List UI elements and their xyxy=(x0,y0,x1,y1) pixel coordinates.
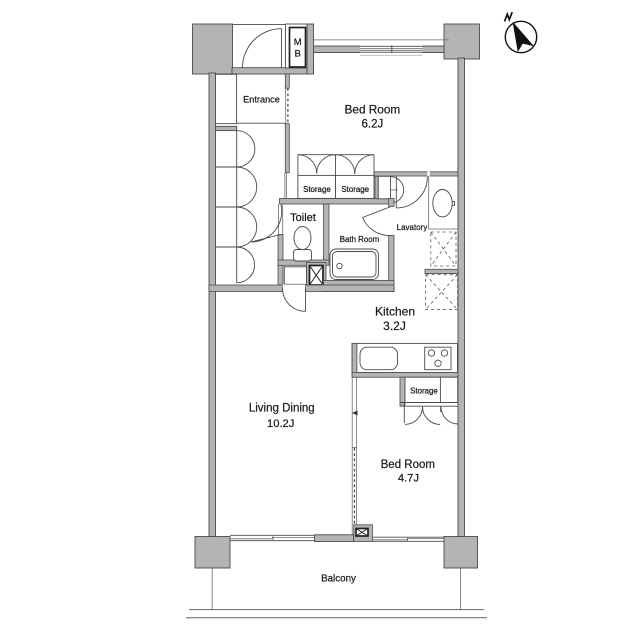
svg-text:Storage: Storage xyxy=(303,185,331,194)
svg-text:10.2J: 10.2J xyxy=(267,418,294,430)
svg-text:6.2J: 6.2J xyxy=(362,119,384,131)
svg-text:Lavatory: Lavatory xyxy=(397,223,428,232)
svg-text:Bath Room: Bath Room xyxy=(340,235,380,244)
svg-text:B: B xyxy=(295,49,301,60)
svg-text:4.7J: 4.7J xyxy=(398,473,419,485)
svg-text:Storage: Storage xyxy=(410,386,438,395)
svg-text:Toilet: Toilet xyxy=(290,212,316,224)
svg-text:Balcony: Balcony xyxy=(321,573,356,584)
svg-text:Bed Room: Bed Room xyxy=(381,459,435,471)
svg-text:3.2J: 3.2J xyxy=(383,319,406,333)
svg-text:Entrance: Entrance xyxy=(243,95,280,105)
svg-text:M: M xyxy=(294,37,302,48)
svg-text:Kitchen: Kitchen xyxy=(375,305,415,319)
svg-text:Bed Room: Bed Room xyxy=(345,103,401,117)
svg-text:Living Dining: Living Dining xyxy=(249,402,315,414)
svg-text:Storage: Storage xyxy=(341,185,369,194)
